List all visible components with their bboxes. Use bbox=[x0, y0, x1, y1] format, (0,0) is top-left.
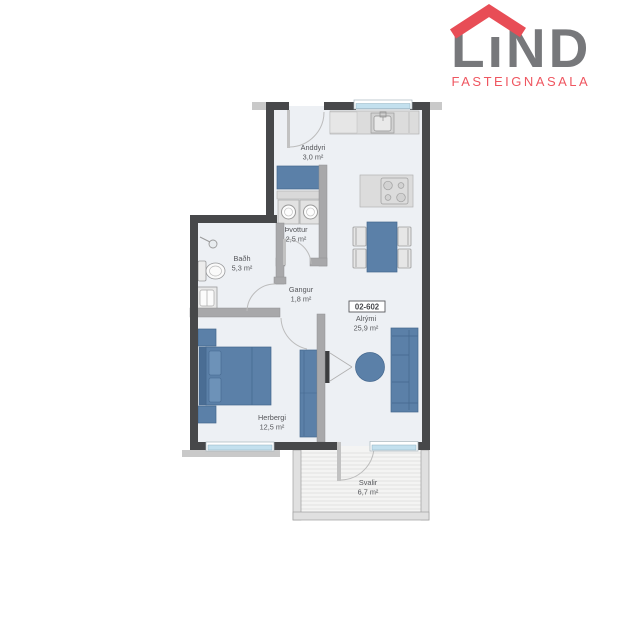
svg-text:Gangur: Gangur bbox=[289, 285, 314, 294]
sofa-icon bbox=[391, 328, 418, 412]
svg-text:Herbergi: Herbergi bbox=[258, 413, 286, 422]
chair-icon bbox=[353, 249, 366, 268]
screenshot-canvas: LIND FASTEIGNASALA bbox=[0, 0, 620, 620]
room-label-alrymi: Alrými 25,9 m² bbox=[354, 314, 379, 333]
dining-table-icon bbox=[367, 222, 397, 272]
chair-icon bbox=[398, 249, 411, 268]
kitchen-window-icon bbox=[354, 100, 412, 109]
svg-text:Þvottur: Þvottur bbox=[284, 225, 308, 234]
tv-icon bbox=[325, 351, 330, 383]
bed-icon bbox=[199, 347, 271, 405]
room-label-gangur: Gangur 1,8 m² bbox=[289, 285, 314, 304]
kitchen-island bbox=[360, 175, 413, 207]
wardrobe-icon bbox=[300, 350, 317, 437]
floor-plan-image: LIND FASTEIGNASALA bbox=[0, 0, 620, 620]
svg-text:2,5 m²: 2,5 m² bbox=[286, 235, 307, 244]
room-label-herbergi: Herbergi 12,5 m² bbox=[258, 413, 286, 432]
laundry-counter bbox=[277, 191, 322, 199]
vanity-sink-icon bbox=[197, 287, 217, 309]
room-label-badh: Baðh 5,3 m² bbox=[232, 254, 253, 273]
svg-text:6,7 m²: 6,7 m² bbox=[358, 488, 379, 497]
chair-icon bbox=[398, 227, 411, 246]
balcony-wall-bottom bbox=[293, 512, 429, 520]
svg-text:25,9 m²: 25,9 m² bbox=[354, 324, 379, 333]
balcony-wall-right bbox=[421, 450, 429, 520]
svg-text:Alrými: Alrými bbox=[356, 314, 377, 323]
svg-text:Svalir: Svalir bbox=[359, 478, 378, 487]
bedroom-window-icon bbox=[206, 442, 274, 451]
svg-text:5,3 m²: 5,3 m² bbox=[232, 264, 253, 273]
coffee-table-icon bbox=[356, 353, 385, 382]
balcony-wall-left bbox=[293, 450, 301, 520]
svg-text:12,5 m²: 12,5 m² bbox=[260, 423, 285, 432]
closet-icon bbox=[277, 166, 322, 189]
chair-icon bbox=[353, 227, 366, 246]
brand-logo: LIND FASTEIGNASALA bbox=[451, 11, 591, 90]
livingroom-window-icon bbox=[370, 442, 418, 452]
svg-text:3,0 m²: 3,0 m² bbox=[303, 153, 324, 162]
nightstand-icon bbox=[198, 406, 216, 423]
svg-text:Anddyri: Anddyri bbox=[301, 143, 326, 152]
svg-text:02-602: 02-602 bbox=[355, 303, 380, 312]
svg-text:Baðh: Baðh bbox=[233, 254, 250, 263]
room-label-anddyri: Anddyri 3,0 m² bbox=[301, 143, 326, 162]
tall-cabinet bbox=[330, 112, 357, 133]
toilet-icon bbox=[198, 261, 225, 281]
logo-i-gap bbox=[482, 24, 503, 37]
room-label-thvottur: Þvottur 2,5 m² bbox=[284, 225, 308, 244]
room-label-svalir: Svalir 6,7 m² bbox=[358, 478, 379, 497]
nightstand-icon bbox=[198, 329, 216, 346]
svg-text:1,8 m²: 1,8 m² bbox=[291, 295, 312, 304]
brand-subtitle: FASTEIGNASALA bbox=[452, 74, 591, 89]
unit-number-badge: 02-602 bbox=[349, 301, 385, 312]
